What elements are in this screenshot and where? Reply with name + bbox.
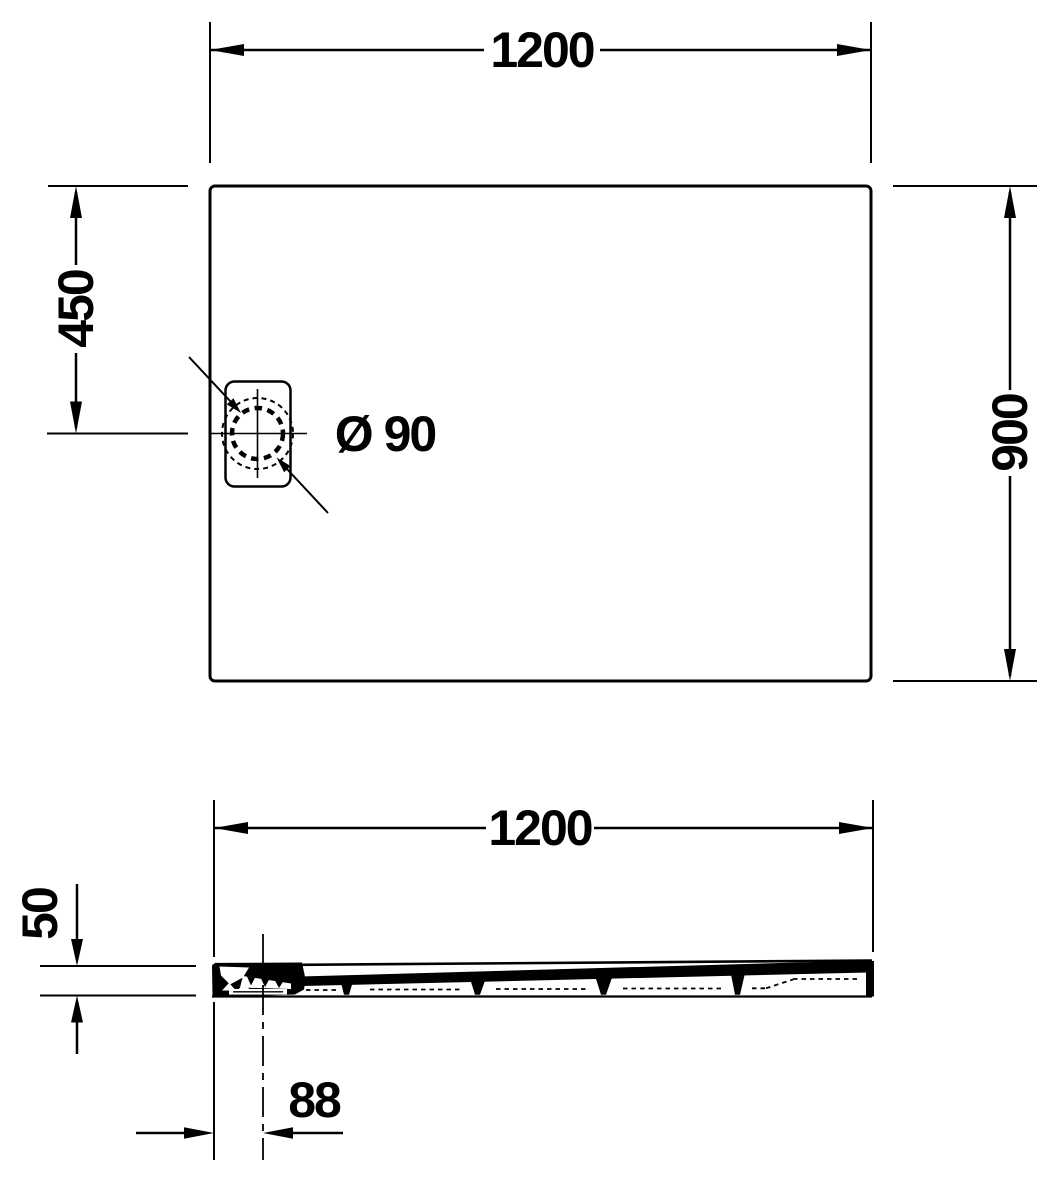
dim-label-bottom-width: 1200 [470,802,610,854]
arrowhead [70,186,82,218]
arrowhead [214,822,248,834]
dim-label-height-50: 50 [14,854,66,974]
dim-label-top-width: 1200 [472,24,612,76]
side-view [40,800,874,1160]
drawing-sheet: 1200 450 900 Ø 90 1200 50 88 [0,0,1060,1200]
arrowhead [1004,649,1016,681]
arrowhead [71,939,83,966]
rib [594,972,614,995]
arrowhead [71,996,83,1023]
top-view [47,22,1037,681]
tray-profile [212,961,874,997]
rib [340,978,354,995]
drawing-canvas [0,0,1060,1200]
arrowhead [70,402,82,434]
arrowhead [1004,186,1016,218]
dim-label-drain-diameter: Ø 90 [305,408,465,460]
dim-label-drain-offset-88: 88 [254,1078,374,1122]
rib [730,969,746,995]
arrowhead [210,44,244,56]
arrowhead [837,44,871,56]
arrowhead [839,822,873,834]
arrowhead [263,1127,293,1139]
dim-label-depth-900: 900 [984,353,1036,513]
arrowhead [184,1127,214,1139]
rib [469,975,487,995]
dim-label-drain-offset-450: 450 [50,229,102,389]
